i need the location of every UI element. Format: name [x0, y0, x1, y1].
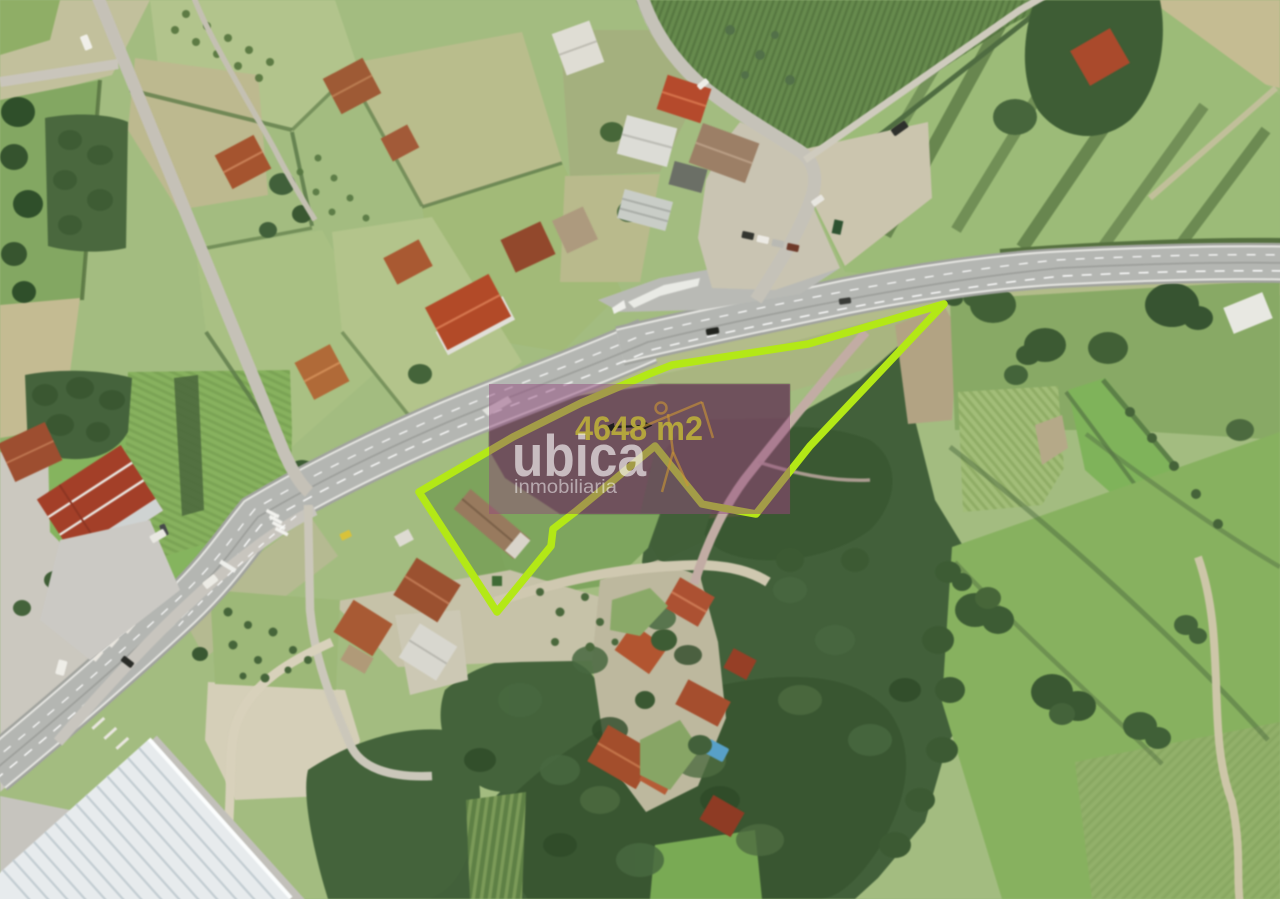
svg-text:inmobiliaria: inmobiliaria: [514, 477, 617, 498]
